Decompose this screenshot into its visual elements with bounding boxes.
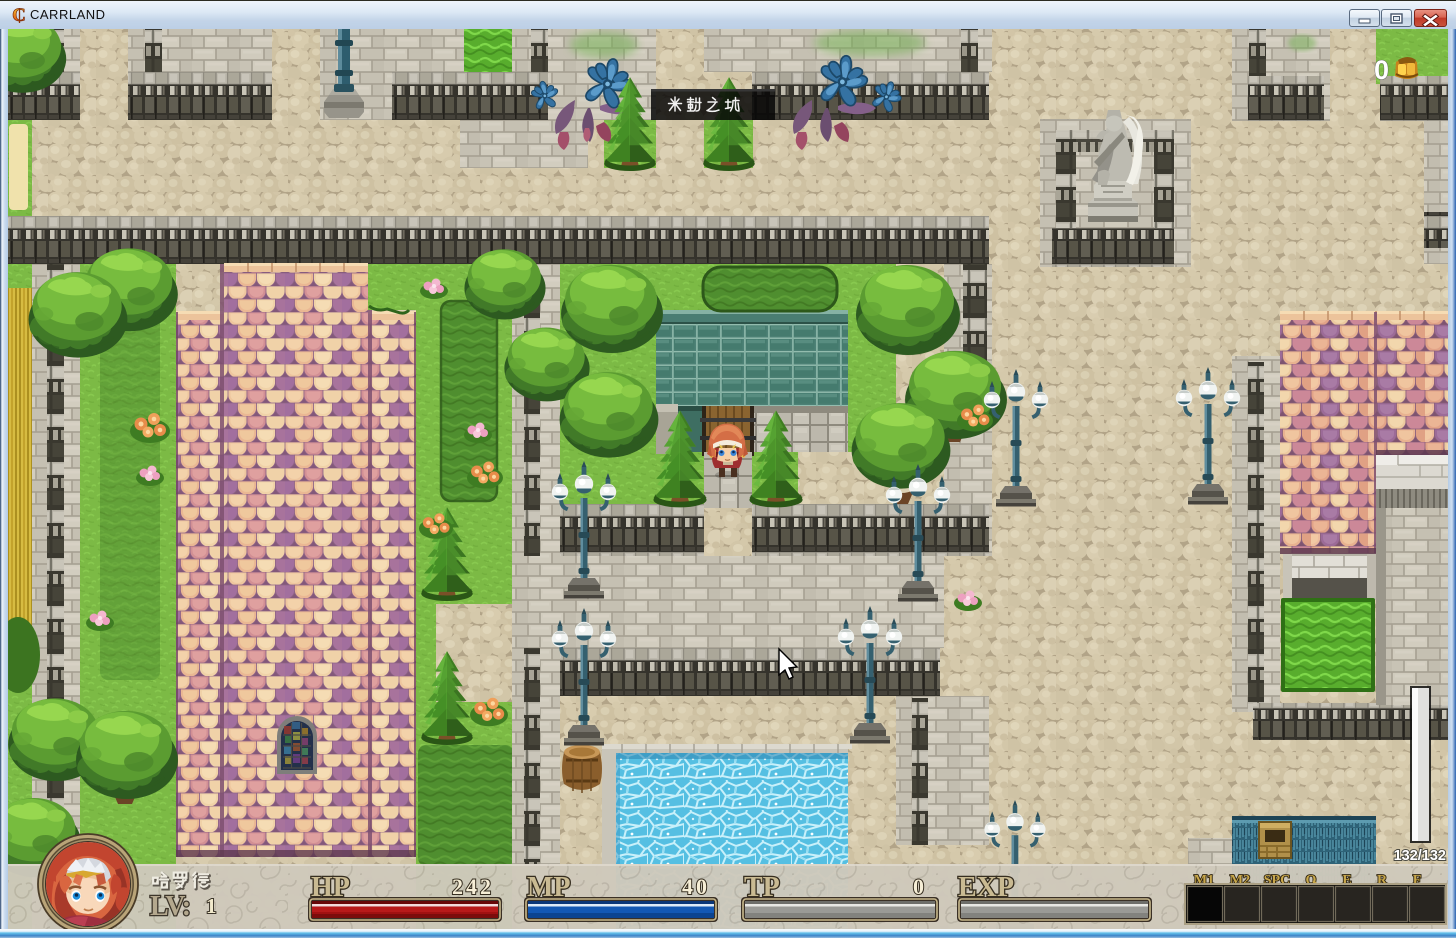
svg-text:0: 0	[913, 874, 924, 899]
svg-text:40: 40	[682, 874, 710, 899]
svg-text:242: 242	[452, 874, 494, 899]
svg-text:LV:: LV:	[150, 891, 190, 922]
svg-text:132/132: 132/132	[1394, 848, 1446, 864]
svg-text:0: 0	[1374, 55, 1389, 85]
svg-text:1: 1	[206, 894, 217, 918]
